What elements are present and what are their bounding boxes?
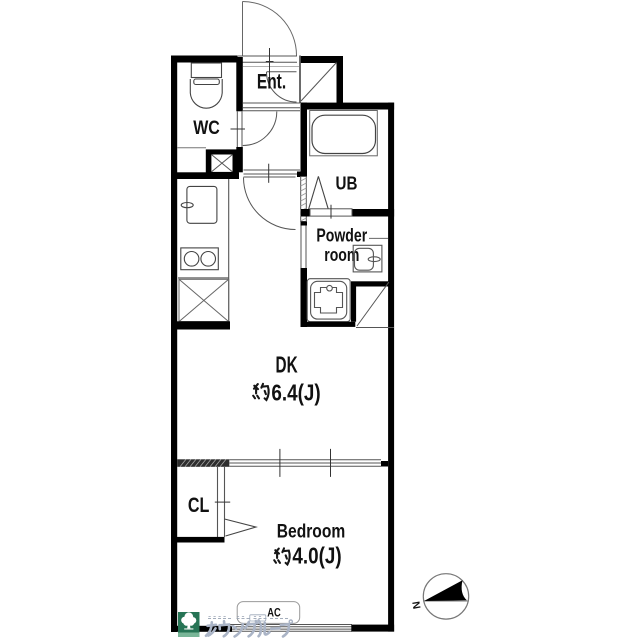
svg-text:UB: UB bbox=[336, 173, 358, 194]
svg-text:CL: CL bbox=[188, 494, 210, 518]
svg-text:DK: DK bbox=[276, 352, 298, 378]
svg-text:AC: AC bbox=[267, 607, 281, 620]
svg-text:Ent.: Ent. bbox=[257, 69, 286, 93]
svg-text:N: N bbox=[410, 600, 423, 610]
svg-text:Powder: Powder bbox=[316, 226, 367, 246]
svg-text:Bedroom: Bedroom bbox=[277, 520, 345, 542]
svg-text:4.0(J): 4.0(J) bbox=[292, 544, 341, 569]
svg-text:6.4(J): 6.4(J) bbox=[271, 381, 320, 406]
svg-text:WC: WC bbox=[193, 117, 220, 139]
